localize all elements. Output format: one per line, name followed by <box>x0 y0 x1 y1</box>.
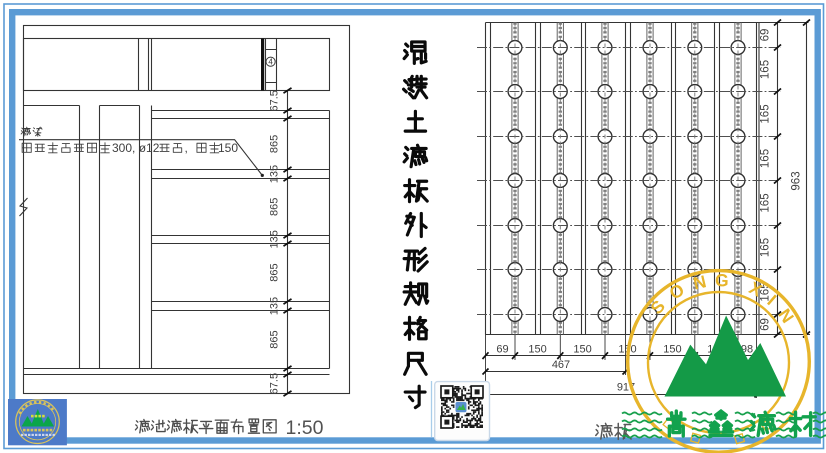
svg-text:,: , <box>185 141 188 155</box>
svg-text:865: 865 <box>269 198 281 216</box>
svg-text:150: 150 <box>573 344 591 356</box>
svg-text:165: 165 <box>760 60 772 79</box>
svg-text:467: 467 <box>552 359 570 371</box>
svg-text:963: 963 <box>791 171 803 190</box>
svg-text:G: G <box>715 270 729 290</box>
svg-text:69: 69 <box>760 318 772 331</box>
svg-text:4: 4 <box>268 58 273 67</box>
svg-text:165: 165 <box>760 149 772 168</box>
svg-text:135: 135 <box>269 230 281 248</box>
svg-text:865: 865 <box>269 135 281 153</box>
svg-text:135: 135 <box>269 165 281 183</box>
svg-text:67.5: 67.5 <box>269 90 281 111</box>
svg-text:150: 150 <box>528 344 546 356</box>
svg-text:150: 150 <box>218 141 238 155</box>
svg-text:165: 165 <box>760 104 772 123</box>
svg-text:300, ø12: 300, ø12 <box>112 141 160 155</box>
svg-text:135: 135 <box>269 297 281 315</box>
svg-text:865: 865 <box>269 330 281 348</box>
svg-text:865: 865 <box>269 263 281 281</box>
svg-text:1:50: 1:50 <box>286 417 324 439</box>
svg-text:150: 150 <box>663 344 681 356</box>
svg-text:67.5: 67.5 <box>269 373 281 394</box>
svg-text:69: 69 <box>760 29 772 42</box>
svg-text:69: 69 <box>496 344 508 356</box>
svg-text:165: 165 <box>760 238 772 257</box>
svg-text:165: 165 <box>760 193 772 212</box>
